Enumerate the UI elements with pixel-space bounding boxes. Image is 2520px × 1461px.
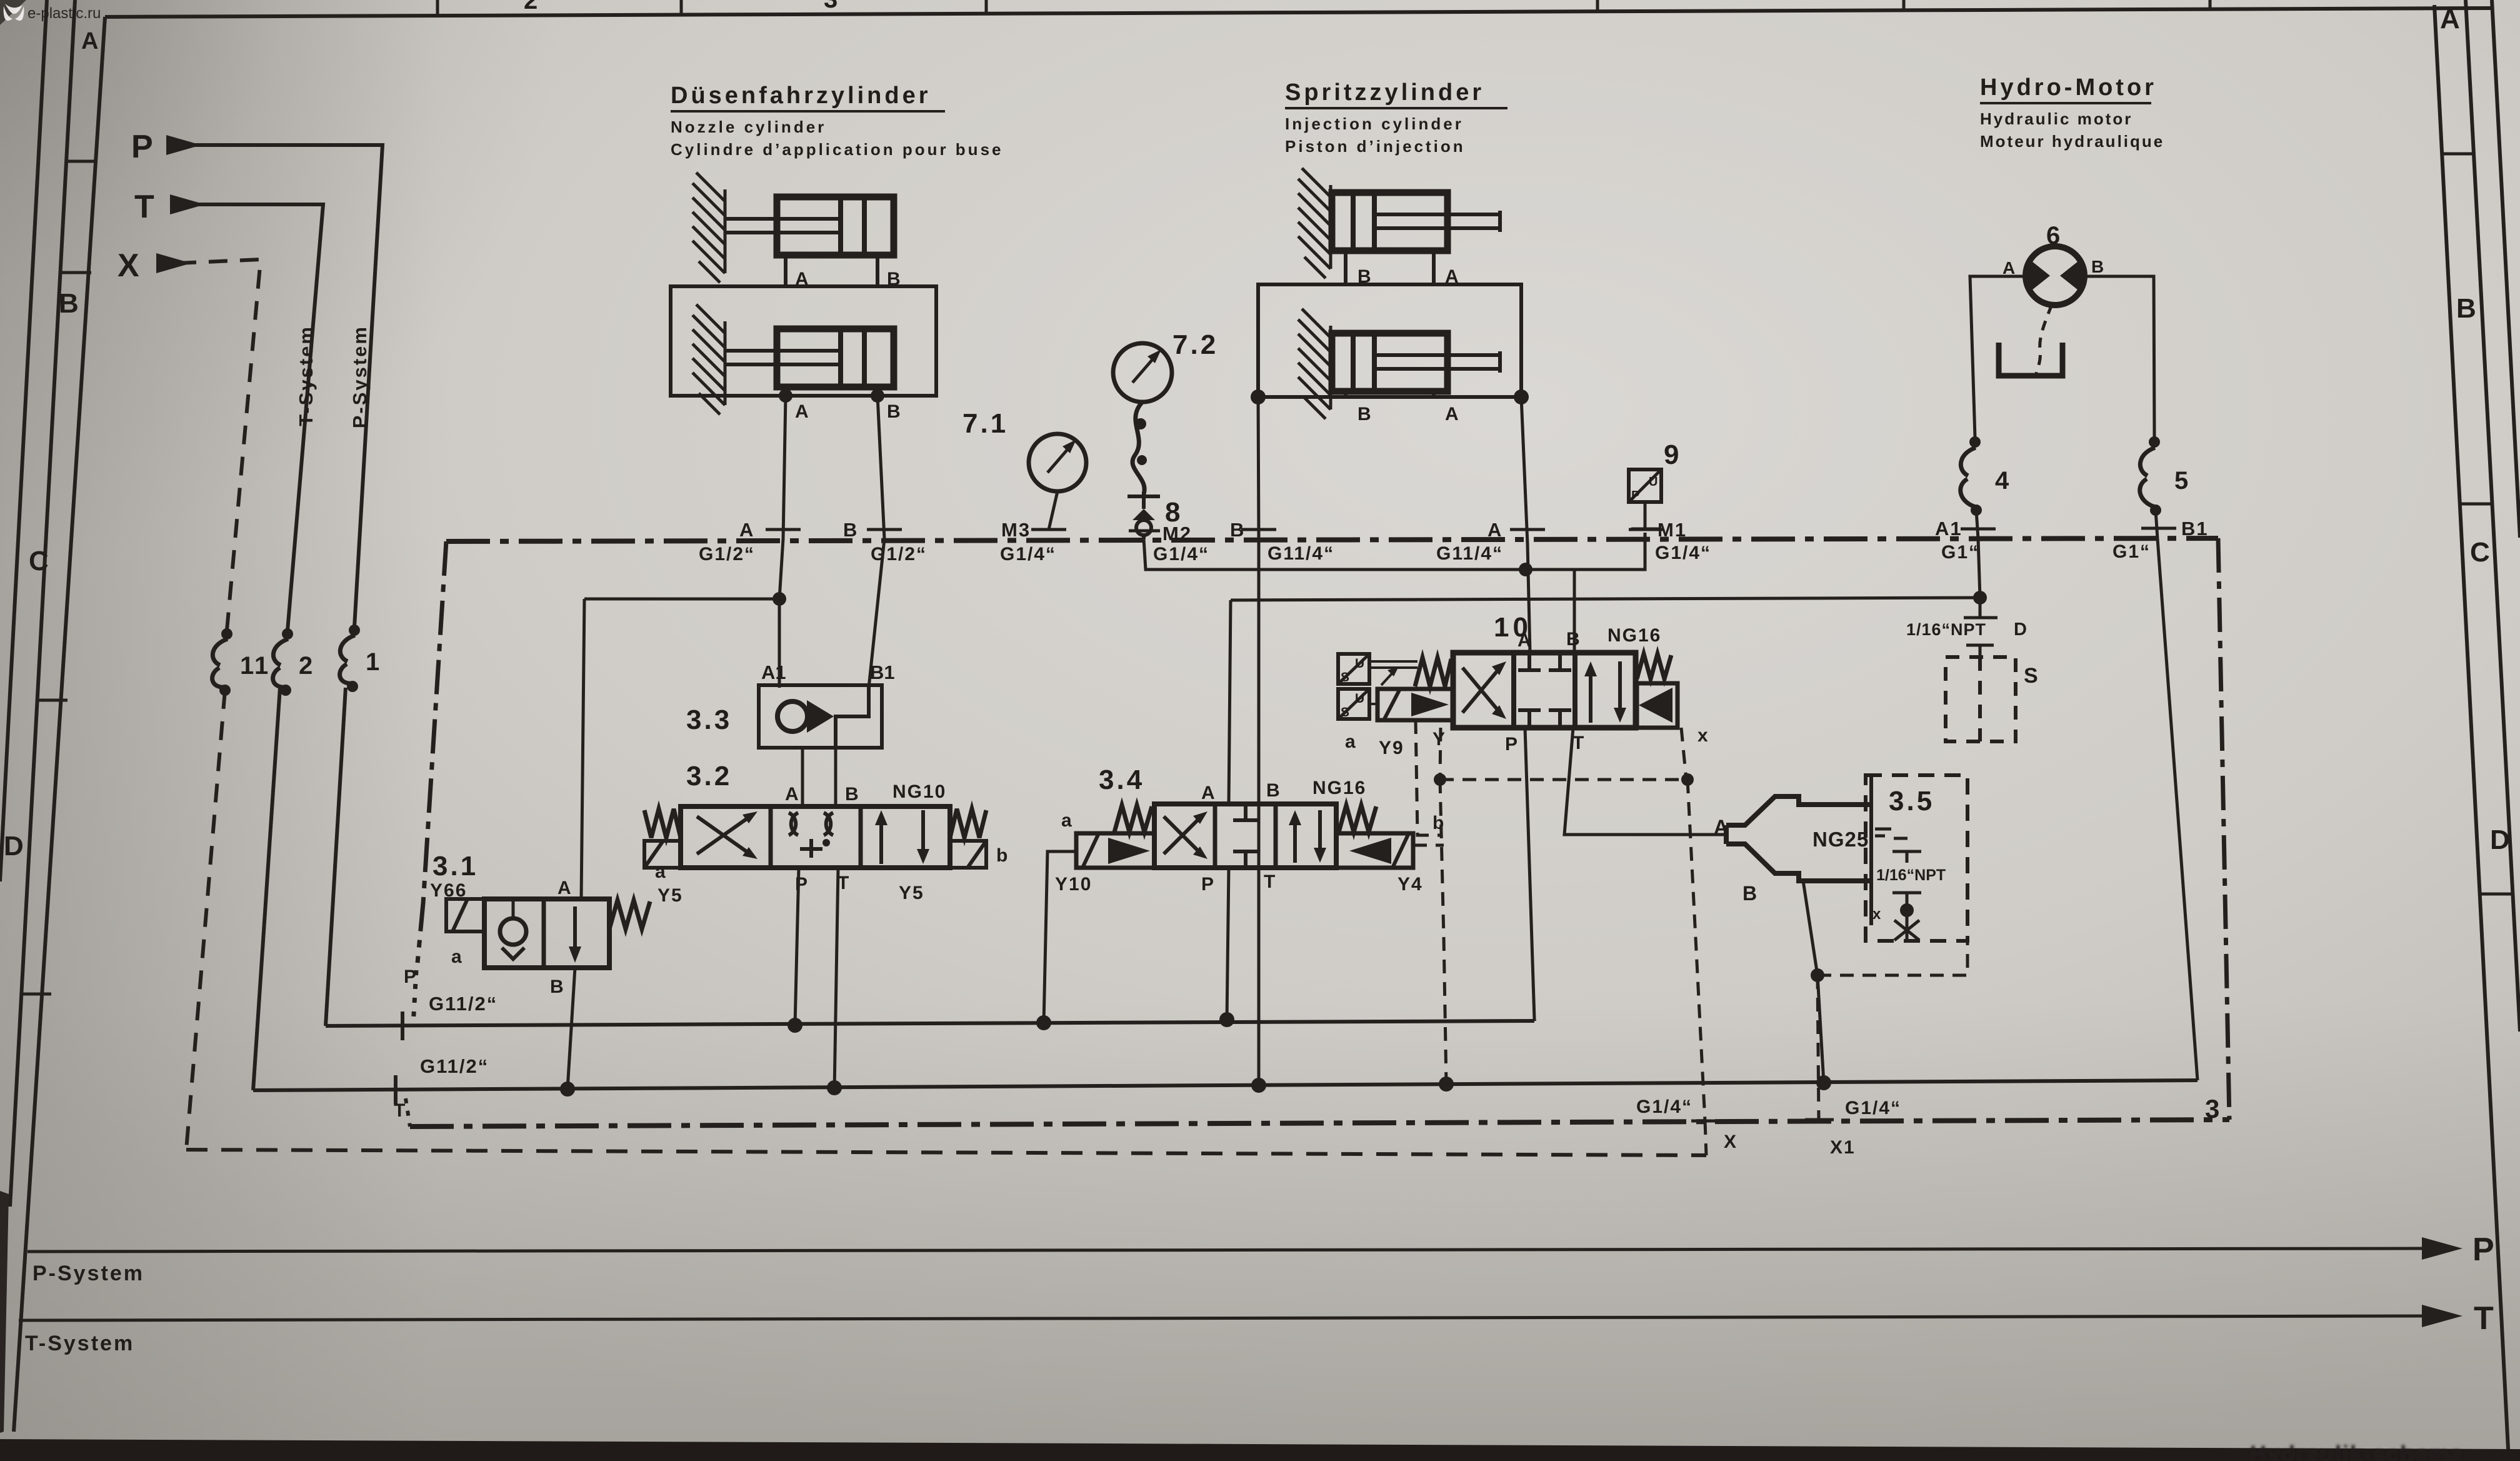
svg-text:B: B: [550, 977, 564, 997]
svg-text:9: 9: [1664, 439, 1679, 470]
svg-text:B: B: [2091, 257, 2104, 276]
svg-text:T: T: [1572, 733, 1584, 753]
svg-text:B: B: [845, 784, 859, 805]
svg-text:G11/4“: G11/4“: [1267, 543, 1334, 564]
svg-text:P: P: [2472, 1232, 2494, 1268]
svg-text:D: D: [4, 831, 24, 861]
svg-text:T: T: [2474, 1300, 2494, 1337]
svg-text:3.5: 3.5: [1889, 786, 1934, 816]
svg-text:P: P: [1631, 489, 1639, 503]
svg-text:x: x: [1872, 906, 1881, 923]
svg-text:7.1: 7.1: [962, 408, 1008, 439]
svg-text:B1: B1: [2181, 518, 2209, 540]
svg-text:A1: A1: [1935, 518, 1962, 540]
svg-text:U: U: [1355, 656, 1364, 671]
svg-text:NG25: NG25: [1812, 828, 1869, 851]
svg-text:11: 11: [240, 652, 270, 680]
svg-text:A1: A1: [761, 661, 786, 683]
svg-text:B: B: [1230, 519, 1245, 541]
svg-text:5: 5: [2174, 467, 2188, 495]
svg-text:8: 8: [1165, 497, 1180, 528]
svg-text:S: S: [1341, 670, 1349, 685]
svg-text:M1: M1: [1657, 519, 1687, 541]
svg-text:A: A: [1517, 630, 1531, 651]
svg-text:Y5: Y5: [899, 883, 924, 903]
svg-text:Y4: Y4: [1397, 874, 1423, 895]
svg-text:A: A: [1714, 816, 1728, 838]
svg-text:S: S: [1341, 705, 1349, 720]
svg-text:Y5: Y5: [657, 885, 683, 906]
svg-text:B: B: [59, 288, 79, 319]
svg-text:a: a: [451, 946, 462, 967]
svg-text:2: 2: [524, 0, 537, 14]
svg-text:Hydraulik-schema: Hydraulik-schema: [2250, 1441, 2464, 1461]
svg-text:A: A: [739, 519, 754, 541]
svg-text:1/16“NPT: 1/16“NPT: [1876, 866, 1946, 884]
svg-text:G1/4“: G1/4“: [1153, 544, 1209, 565]
svg-text:3: 3: [824, 0, 837, 13]
svg-text:3: 3: [2205, 1094, 2219, 1123]
svg-text:U: U: [1355, 691, 1364, 706]
svg-text:1: 1: [366, 648, 379, 676]
svg-text:B: B: [1357, 404, 1371, 424]
svg-text:A: A: [557, 878, 571, 898]
svg-text:Cylindre d’application pour bu: Cylindre d’application pour buse: [671, 140, 1004, 159]
svg-text:Injection cylinder: Injection cylinder: [1285, 114, 1464, 133]
svg-text:T-System: T-System: [25, 1332, 134, 1355]
svg-text:6: 6: [2046, 222, 2060, 249]
svg-text:X1: X1: [1830, 1137, 1856, 1158]
svg-text:T-System: T-System: [295, 325, 317, 426]
svg-text:G1“: G1“: [2112, 541, 2151, 562]
svg-text:B: B: [843, 519, 858, 541]
svg-text:Y66: Y66: [430, 880, 467, 901]
svg-text:A: A: [81, 28, 98, 54]
svg-text:G11/4“: G11/4“: [1436, 543, 1503, 564]
svg-text:Y10: Y10: [1055, 874, 1092, 895]
svg-text:A: A: [795, 401, 809, 422]
svg-text:G1“: G1“: [1941, 542, 1979, 563]
svg-text:P-System: P-System: [349, 325, 371, 428]
svg-text:3.3: 3.3: [686, 705, 732, 735]
svg-text:e-plastic.ru: e-plastic.ru: [27, 5, 101, 22]
svg-text:4: 4: [1995, 467, 2009, 495]
svg-text:Y: Y: [1432, 729, 1445, 750]
svg-text:G1/2“: G1/2“: [871, 544, 927, 565]
svg-text:B: B: [1566, 629, 1580, 650]
svg-text:A: A: [1445, 404, 1459, 424]
svg-text:NG10: NG10: [892, 781, 946, 802]
svg-text:A: A: [1201, 783, 1215, 803]
svg-text:G1/4“: G1/4“: [1655, 543, 1711, 563]
svg-text:Piston d’injection: Piston d’injection: [1285, 137, 1466, 156]
svg-text:G1/4“: G1/4“: [1845, 1098, 1901, 1118]
svg-text:P: P: [1505, 734, 1517, 755]
svg-text:a: a: [1345, 731, 1356, 752]
svg-text:G11/2“: G11/2“: [429, 993, 497, 1015]
svg-text:P: P: [404, 966, 416, 987]
svg-text:3.4: 3.4: [1099, 765, 1144, 795]
svg-text:B: B: [1742, 882, 1757, 905]
svg-text:C: C: [2470, 537, 2490, 568]
svg-text:Düsenfahrzylinder: Düsenfahrzylinder: [671, 83, 931, 109]
svg-text:B: B: [2456, 293, 2476, 324]
svg-text:S: S: [2024, 664, 2038, 688]
svg-text:A: A: [2440, 4, 2460, 34]
svg-text:T: T: [394, 1100, 405, 1121]
svg-text:Hydro-Motor: Hydro-Motor: [1980, 74, 2157, 101]
svg-text:G1/2“: G1/2“: [699, 544, 755, 565]
svg-text:B: B: [887, 401, 901, 422]
svg-text:2: 2: [299, 652, 312, 680]
svg-text:G11/2“: G11/2“: [420, 1055, 489, 1077]
svg-text:a: a: [655, 861, 666, 882]
svg-text:P: P: [131, 129, 153, 165]
svg-text:a: a: [1061, 810, 1072, 831]
svg-text:Moteur hydraulique: Moteur hydraulique: [1980, 132, 2164, 151]
svg-text:x: x: [1697, 725, 1708, 746]
svg-text:U: U: [1649, 475, 1657, 489]
svg-text:A: A: [785, 784, 799, 805]
svg-text:b: b: [996, 845, 1007, 866]
svg-text:B: B: [1266, 780, 1280, 801]
svg-text:G1/4“: G1/4“: [1000, 544, 1056, 565]
svg-text:T: T: [134, 189, 154, 225]
svg-text:C: C: [29, 546, 49, 576]
svg-text:Y9: Y9: [1379, 738, 1404, 758]
svg-text:3.2: 3.2: [686, 761, 732, 791]
svg-text:M3: M3: [1001, 519, 1031, 541]
svg-text:A: A: [2002, 258, 2015, 278]
svg-text:X: X: [117, 248, 139, 284]
svg-text:Hydraulic motor: Hydraulic motor: [1980, 109, 2132, 128]
svg-text:3.1: 3.1: [432, 851, 478, 881]
svg-text:Spritzzylinder: Spritzzylinder: [1285, 79, 1484, 106]
svg-text:T: T: [1264, 871, 1275, 892]
svg-text:P: P: [1201, 874, 1214, 895]
svg-text:B1: B1: [870, 661, 895, 683]
svg-text:1/16“NPT: 1/16“NPT: [1906, 620, 1986, 639]
svg-text:Nozzle cylinder: Nozzle cylinder: [671, 118, 826, 136]
svg-text:X: X: [1724, 1132, 1736, 1152]
svg-text:D: D: [2490, 825, 2510, 855]
svg-text:NG16: NG16: [1607, 625, 1661, 646]
svg-text:NG16: NG16: [1312, 778, 1366, 798]
svg-text:7.2: 7.2: [1172, 329, 1218, 360]
svg-text:D: D: [2014, 620, 2027, 640]
svg-text:P-System: P-System: [32, 1262, 144, 1285]
svg-text:G1/4“: G1/4“: [1636, 1097, 1692, 1117]
svg-text:A: A: [1487, 519, 1502, 541]
